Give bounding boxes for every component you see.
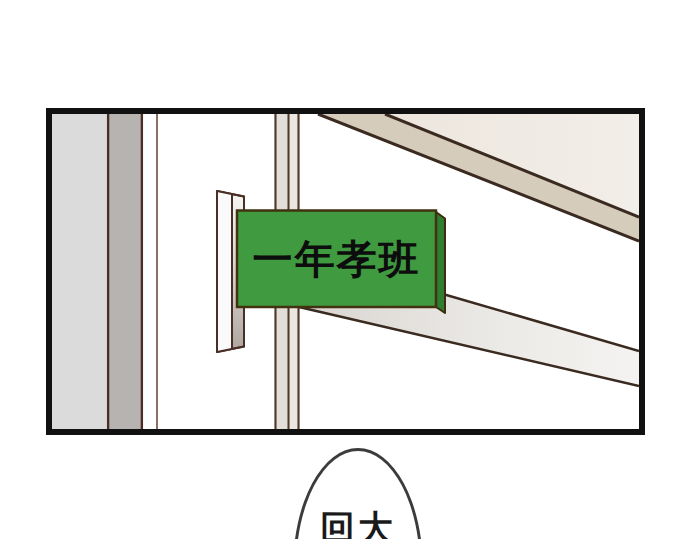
comic-page: 一年孝班 回大 [0,0,690,539]
classroom-sign-text: 一年孝班 [237,211,436,307]
speech-bubble: 回大 [293,448,423,539]
left-wall [52,114,157,429]
speech-bubble-text: 回大 [296,505,420,539]
